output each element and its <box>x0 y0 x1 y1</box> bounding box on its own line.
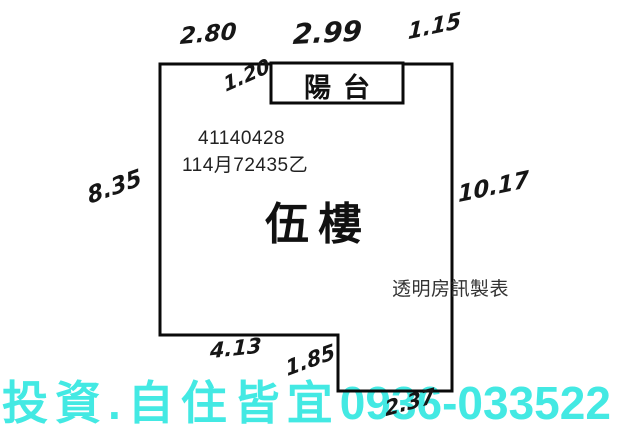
watermark-slogan: 投資.自住皆宜 <box>2 377 340 429</box>
registration-number: 114月72435乙 <box>182 150 308 177</box>
floor-label: 伍樓 <box>265 188 371 252</box>
dimension-bottom-left: 4.13 <box>210 333 262 363</box>
dimension-left-side: 8.35 <box>85 165 144 210</box>
watermark-phone: 0936-033522 <box>340 377 611 429</box>
balcony-label: 陽台 <box>271 66 403 105</box>
dimension-top-left: 2.80 <box>179 19 237 50</box>
watermark-ad: 投資.自住皆宜0936-033522 <box>2 379 611 439</box>
dimension-top-middle: 2.99 <box>292 14 363 51</box>
dimension-right-side: 10.17 <box>458 167 530 209</box>
unit-number: 41140428 <box>198 128 285 150</box>
dimension-top-right: 1.15 <box>408 8 462 45</box>
maker-credit: 透明房訊製表 <box>392 274 509 301</box>
dimension-step-height: 1.85 <box>284 339 337 381</box>
floor-plan-page: 41140428 114月72435乙 陽台 伍樓 透明房訊製表 2.80 2.… <box>0 0 636 448</box>
dimension-balcony-depth: 1.20 <box>221 53 272 97</box>
